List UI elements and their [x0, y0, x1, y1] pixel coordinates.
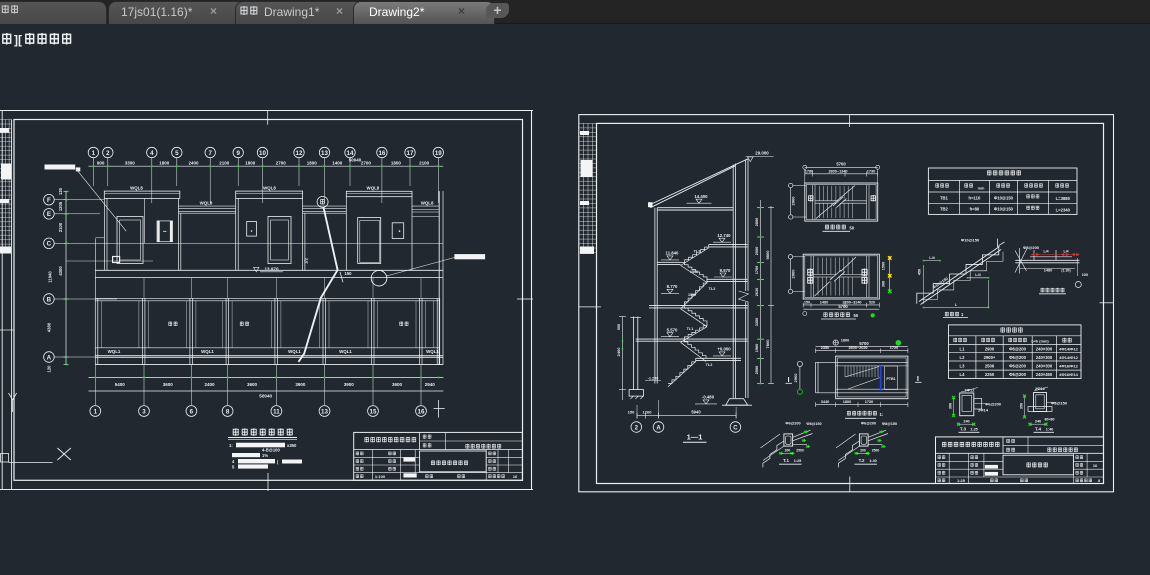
- svg-text:2100: 2100: [419, 161, 430, 166]
- svg-text:7800: 7800: [765, 339, 770, 349]
- svg-text:5400: 5400: [115, 382, 126, 387]
- svg-text:50040: 50040: [349, 157, 362, 162]
- svg-text:Φ8@150: Φ8@150: [882, 422, 897, 426]
- svg-text:200: 200: [860, 449, 866, 453]
- svg-text:4-B@100: 4-B@100: [262, 448, 280, 453]
- svg-text:WQL8: WQL8: [200, 201, 213, 206]
- svg-text:4Φ16/Φ14: 4Φ16/Φ14: [1059, 372, 1079, 377]
- svg-text:2900: 2900: [793, 373, 798, 383]
- svg-text:200: 200: [785, 449, 791, 453]
- svg-text:Φ10@150: Φ10@150: [994, 207, 1014, 212]
- svg-text:2900: 2900: [791, 196, 796, 206]
- svg-text:350: 350: [1020, 403, 1024, 409]
- svg-text:2500: 2500: [755, 247, 759, 255]
- svg-text:Φ6@200: Φ6@200: [1009, 372, 1027, 377]
- svg-text:50040: 50040: [259, 394, 272, 399]
- svg-text:240×300: 240×300: [1036, 346, 1053, 351]
- svg-text:WQL8: WQL8: [421, 200, 434, 205]
- svg-text:3600: 3600: [163, 382, 174, 387]
- svg-text:6: 6: [190, 408, 194, 415]
- svg-text:900: 900: [97, 161, 105, 166]
- svg-text:WQL1: WQL1: [288, 349, 301, 354]
- svg-text:1: 1: [94, 408, 98, 415]
- svg-text:240: 240: [1035, 419, 1041, 423]
- svg-text:2900: 2900: [985, 346, 995, 351]
- svg-text:2900+: 2900+: [984, 355, 996, 360]
- svg-text:TL2: TL2: [706, 363, 713, 367]
- svg-text:1400: 1400: [332, 161, 343, 166]
- svg-text:1—1: 1—1: [687, 433, 703, 442]
- svg-text:80×80: 80×80: [1044, 418, 1054, 422]
- svg-text:1700: 1700: [755, 266, 759, 274]
- svg-text:WQL1: WQL1: [201, 349, 214, 354]
- svg-text:(1:30): (1:30): [1061, 269, 1070, 273]
- svg-text:19: 19: [435, 150, 442, 157]
- svg-text:1800: 1800: [843, 400, 851, 404]
- svg-text:4: 4: [150, 150, 154, 157]
- svg-text:+0.000: +0.000: [717, 347, 731, 352]
- svg-text:5700: 5700: [836, 162, 846, 167]
- svg-text:240×450: 240×450: [1036, 372, 1053, 377]
- svg-text:2400: 2400: [204, 382, 215, 387]
- svg-text:150: 150: [345, 271, 353, 276]
- svg-text:4Φ16/Φ12: 4Φ16/Φ12: [1059, 364, 1079, 369]
- svg-text:10: 10: [259, 150, 266, 157]
- svg-text:Φ6@200: Φ6@200: [1009, 346, 1027, 351]
- svg-text:4300: 4300: [58, 266, 63, 276]
- svg-text:2350: 2350: [821, 346, 829, 350]
- svg-text:Φ6@200: Φ6@200: [861, 421, 876, 425]
- svg-text:Φ6@200: Φ6@200: [785, 421, 800, 425]
- svg-text:E: E: [47, 211, 51, 218]
- svg-text:1800: 1800: [841, 339, 849, 343]
- svg-text:11.840: 11.840: [666, 251, 680, 256]
- svg-text:240×300: 240×300: [1036, 364, 1053, 369]
- svg-text:L=2340: L=2340: [1056, 207, 1071, 212]
- svg-text:Φ8@200: Φ8@200: [1023, 245, 1040, 250]
- svg-text:1/2: 1/2: [304, 257, 309, 263]
- svg-text:150: 150: [628, 410, 635, 415]
- svg-text:5700: 5700: [859, 341, 869, 346]
- svg-text:4Φ14/Φ12: 4Φ14/Φ12: [1059, 346, 1079, 351]
- svg-text:Φ10@150: Φ10@150: [994, 195, 1014, 200]
- svg-text:520: 520: [869, 300, 875, 304]
- svg-text:29.000: 29.000: [755, 150, 769, 155]
- svg-text:240: 240: [963, 419, 969, 423]
- svg-text:14: 14: [347, 150, 354, 157]
- svg-text:I: I: [917, 374, 919, 383]
- svg-text:2630: 2630: [755, 288, 759, 296]
- svg-text:TL2: TL2: [709, 287, 716, 291]
- svg-text:13.970: 13.970: [264, 267, 278, 272]
- svg-text:1730: 1730: [867, 169, 875, 173]
- svg-text:2100: 2100: [219, 161, 230, 166]
- svg-text:][: ][: [14, 33, 22, 47]
- svg-text:2500: 2500: [796, 449, 804, 453]
- svg-text:L3: L3: [960, 364, 966, 369]
- svg-text:1%: 1%: [262, 453, 268, 458]
- svg-text:F: F: [47, 197, 51, 204]
- svg-text:T.4: T.4: [1035, 427, 1042, 432]
- svg-text:8: 8: [226, 408, 230, 415]
- svg-text:9: 9: [236, 150, 240, 157]
- svg-text:WQL1: WQL1: [426, 349, 439, 354]
- svg-text:1730: 1730: [865, 400, 873, 404]
- svg-text:L2: L2: [960, 355, 966, 360]
- svg-text:L/4: L/4: [1043, 250, 1048, 254]
- svg-text:11: 11: [273, 408, 280, 415]
- svg-text:9800: 9800: [765, 250, 770, 260]
- svg-text:3900: 3900: [295, 382, 306, 387]
- svg-text:PTB1: PTB1: [886, 377, 895, 381]
- svg-text:-1.250: -1.250: [648, 377, 659, 381]
- svg-text:C: C: [47, 241, 52, 248]
- svg-text:1780: 1780: [805, 169, 813, 173]
- svg-text:15: 15: [370, 408, 377, 415]
- svg-text:5: 5: [175, 150, 179, 157]
- svg-text:300: 300: [949, 403, 953, 409]
- svg-text:8: 8: [1098, 479, 1100, 483]
- svg-text:Φ10@150: Φ10@150: [961, 238, 980, 243]
- svg-text:450: 450: [918, 269, 922, 275]
- svg-text:1500: 1500: [881, 262, 885, 270]
- svg-text:3300: 3300: [125, 161, 136, 166]
- svg-text:1:40: 1:40: [869, 459, 877, 463]
- svg-text:h=110: h=110: [969, 195, 981, 200]
- svg-text:3600: 3600: [392, 382, 403, 387]
- svg-text:1: 1: [961, 312, 964, 317]
- svg-text:I: I: [787, 375, 789, 384]
- svg-text:2Φ14: 2Φ14: [978, 408, 989, 413]
- svg-text:1205: 1205: [58, 201, 63, 211]
- svg-text:WQL1: WQL1: [108, 349, 121, 354]
- svg-text:Φ6@200: Φ6@200: [1009, 364, 1027, 369]
- svg-text:h=80: h=80: [970, 207, 980, 212]
- svg-text:TB1: TB1: [940, 195, 949, 200]
- svg-text:TB2: TB2: [940, 207, 949, 212]
- svg-text:T.3: T.3: [960, 427, 967, 432]
- svg-text:1:25: 1:25: [957, 478, 966, 483]
- svg-text:b×h (mm): b×h (mm): [1031, 339, 1049, 343]
- svg-text:1800: 1800: [391, 161, 402, 166]
- svg-text:2100: 2100: [58, 222, 63, 232]
- svg-text:1900: 1900: [755, 344, 759, 352]
- svg-text:L/4: L/4: [929, 256, 935, 260]
- svg-text:1800: 1800: [307, 161, 318, 166]
- svg-text:C: C: [733, 425, 738, 431]
- svg-text:WQL8: WQL8: [263, 185, 276, 190]
- svg-text:1:: 1:: [880, 412, 884, 417]
- svg-text:5940: 5940: [691, 410, 701, 415]
- svg-text:B: B: [47, 296, 52, 303]
- svg-text:2400: 2400: [616, 347, 621, 357]
- svg-text:2: 2: [635, 425, 639, 431]
- svg-text:1:25: 1:25: [794, 459, 802, 463]
- svg-text:mm: mm: [978, 186, 985, 190]
- svg-text:WQL8: WQL8: [367, 185, 380, 190]
- svg-text:L4: L4: [960, 372, 966, 377]
- svg-text:Φ8@150: Φ8@150: [1051, 401, 1068, 406]
- svg-text:3440: 3440: [821, 400, 829, 404]
- svg-text:16: 16: [418, 408, 425, 415]
- svg-text:2400: 2400: [188, 161, 199, 166]
- svg-text:1500: 1500: [690, 270, 698, 274]
- svg-text:-0.480: -0.480: [702, 395, 715, 400]
- svg-text:16: 16: [1093, 464, 1097, 468]
- svg-text:1480: 1480: [820, 300, 828, 304]
- svg-text:5.570: 5.570: [667, 328, 678, 333]
- svg-text:WQL1: WQL1: [339, 349, 352, 354]
- svg-text:L/4: L/4: [1063, 250, 1068, 254]
- svg-text:500: 500: [617, 324, 621, 330]
- svg-text:1260: 1260: [643, 410, 653, 415]
- svg-text:120: 120: [58, 187, 63, 195]
- svg-text:4: 4: [232, 459, 235, 464]
- svg-text:L: L: [955, 303, 958, 307]
- svg-text:1:100: 1:100: [375, 474, 386, 479]
- svg-text:2900: 2900: [790, 269, 795, 279]
- svg-text:7: 7: [208, 150, 212, 157]
- svg-text:3600: 3600: [247, 382, 258, 387]
- svg-text:50: 50: [850, 226, 855, 231]
- svg-text:4Φ14/Φ12: 4Φ14/Φ12: [1059, 355, 1079, 360]
- svg-text:Φ6@200: Φ6@200: [1009, 355, 1027, 360]
- svg-text:Φ8@150: Φ8@150: [806, 422, 821, 426]
- svg-text:16: 16: [378, 150, 385, 157]
- svg-text:2800−1340: 2800−1340: [828, 169, 847, 173]
- svg-text:2700: 2700: [276, 161, 287, 166]
- svg-text:1:40: 1:40: [1046, 428, 1054, 432]
- svg-text:T.1: T.1: [783, 458, 789, 463]
- svg-text:13: 13: [321, 150, 328, 157]
- svg-text:L=3880: L=3880: [1056, 196, 1071, 201]
- svg-text:1720: 1720: [890, 346, 898, 350]
- svg-text:2940: 2940: [425, 382, 436, 387]
- svg-text:3: 3: [142, 408, 146, 415]
- svg-text:(: (: [277, 460, 279, 465]
- svg-text:300: 300: [881, 281, 885, 287]
- svg-text:L/4: L/4: [975, 273, 981, 277]
- svg-text:1:: 1:: [229, 443, 233, 448]
- svg-text:150: 150: [804, 300, 810, 304]
- svg-text:TL1: TL1: [687, 327, 694, 331]
- svg-text:240×300: 240×300: [1036, 355, 1053, 360]
- svg-text:120: 120: [47, 365, 52, 373]
- svg-text:1800: 1800: [245, 161, 256, 166]
- svg-text:T.2: T.2: [859, 458, 865, 463]
- svg-text:2800: 2800: [755, 218, 759, 226]
- svg-text:2Φ12: 2Φ12: [965, 388, 976, 393]
- svg-text:4380: 4380: [47, 322, 52, 332]
- svg-text:13: 13: [321, 408, 328, 415]
- svg-text:11940: 11940: [48, 271, 53, 283]
- svg-text:1: 1: [92, 150, 96, 157]
- svg-text:2506: 2506: [985, 364, 995, 369]
- svg-text:1:25: 1:25: [970, 428, 978, 432]
- svg-text:TL2: TL2: [694, 250, 701, 254]
- svg-text:16: 16: [513, 474, 518, 479]
- svg-text:5700: 5700: [838, 304, 848, 309]
- svg-text:100: 100: [1082, 273, 1088, 277]
- svg-text:2500: 2500: [872, 449, 880, 453]
- svg-text:2250: 2250: [985, 372, 995, 377]
- svg-text:5: 5: [232, 464, 235, 469]
- svg-text:x350: x350: [287, 443, 297, 448]
- svg-text:2700: 2700: [361, 161, 372, 166]
- svg-text:A: A: [47, 354, 52, 361]
- svg-text:Φ6@200: Φ6@200: [985, 402, 1002, 407]
- svg-text:9.570: 9.570: [720, 268, 731, 273]
- svg-text:8.770: 8.770: [667, 284, 678, 289]
- svg-text:17: 17: [407, 150, 414, 157]
- svg-text:14.400: 14.400: [694, 194, 708, 199]
- svg-text:50: 50: [854, 313, 859, 318]
- svg-text:1480: 1480: [1044, 269, 1052, 273]
- svg-text:2500: 2500: [755, 366, 759, 374]
- svg-text:2800−2020: 2800−2020: [848, 346, 867, 350]
- svg-text:A: A: [656, 425, 661, 431]
- svg-text:3350: 3350: [755, 318, 759, 326]
- svg-text:3900: 3900: [344, 382, 355, 387]
- svg-text:1800: 1800: [159, 161, 170, 166]
- svg-text:12: 12: [296, 150, 303, 157]
- svg-text:1500: 1500: [688, 293, 696, 297]
- svg-text:WQL8: WQL8: [130, 185, 143, 190]
- svg-text:L1: L1: [960, 346, 966, 351]
- svg-text:2: 2: [106, 150, 110, 157]
- svg-text:12.740: 12.740: [717, 233, 731, 238]
